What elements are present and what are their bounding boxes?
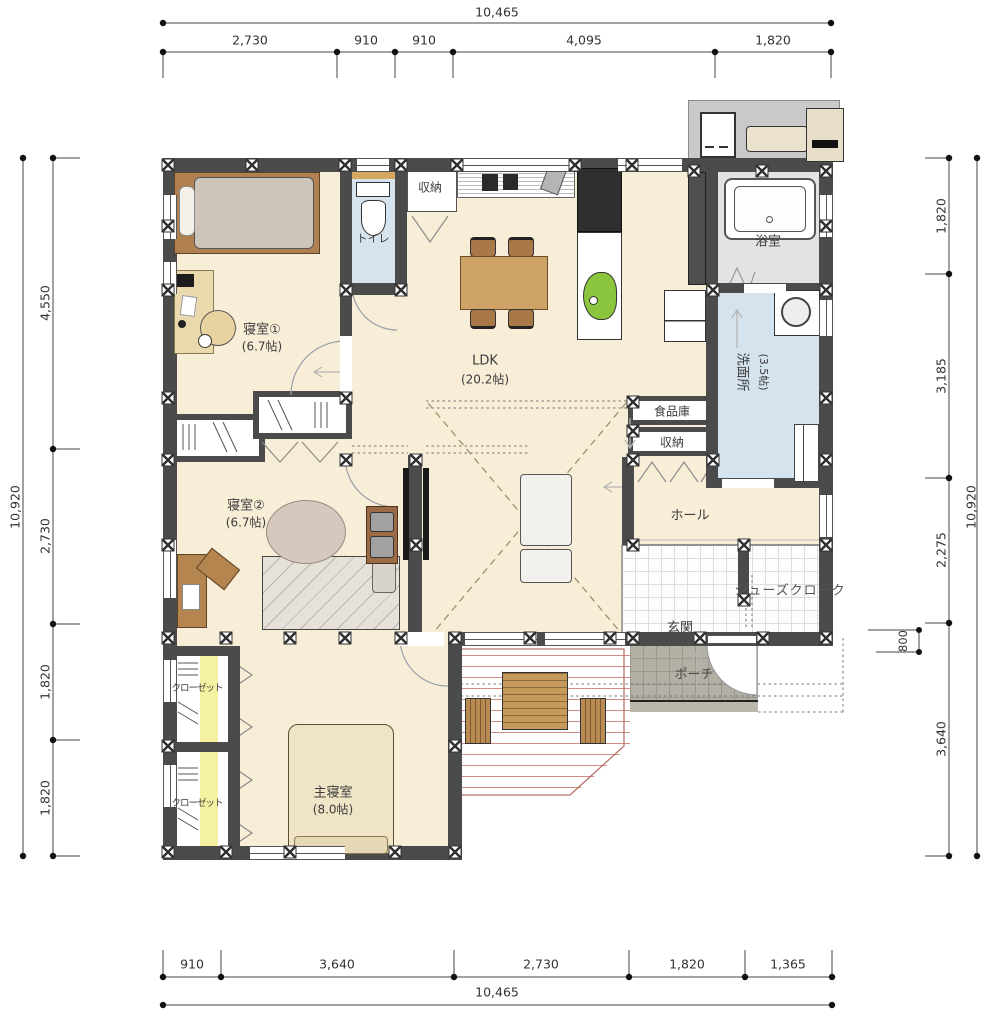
post-marker-icon bbox=[449, 740, 462, 753]
porch-step bbox=[630, 700, 758, 712]
post-marker-icon bbox=[626, 159, 639, 172]
tv-board-living bbox=[423, 468, 429, 560]
closet-upper-label: クローゼット bbox=[171, 680, 222, 694]
kitchen-sink bbox=[583, 272, 617, 320]
master-label: 主寝室 bbox=[313, 782, 352, 801]
bedroom1-area: (6.7帖) bbox=[242, 338, 282, 355]
desk2-paper bbox=[182, 584, 200, 610]
post-marker-icon bbox=[162, 454, 175, 467]
post-marker-icon bbox=[340, 284, 353, 297]
post-marker-icon bbox=[707, 454, 720, 467]
closet-mat-upper bbox=[200, 656, 218, 742]
dresser-drawer-2 bbox=[370, 536, 394, 558]
deck-chair-2 bbox=[580, 698, 606, 744]
door-opening bbox=[722, 479, 774, 488]
dim-right-seg-1: 3,185 bbox=[934, 358, 949, 394]
dim-left-seg-2: 1,820 bbox=[38, 664, 53, 700]
bath-drain bbox=[766, 216, 773, 223]
vanity bbox=[794, 424, 819, 482]
bed2-pillow bbox=[372, 561, 396, 593]
washroom-area: (3.5帖) bbox=[756, 353, 772, 390]
shoes-closet-label: シューズクローク bbox=[734, 580, 845, 599]
dining-chair-1 bbox=[470, 237, 496, 257]
closet-lower-label: クローゼット bbox=[171, 795, 222, 809]
water-heater-tank bbox=[806, 108, 844, 162]
dim-top-seg-0: 2,730 bbox=[232, 33, 268, 48]
post-marker-icon bbox=[284, 632, 297, 645]
laptop bbox=[177, 274, 194, 287]
post-marker-icon bbox=[162, 284, 175, 297]
toilet-label: トイレ bbox=[357, 230, 390, 246]
post-marker-icon bbox=[162, 846, 175, 859]
storage-top-label: 収納 bbox=[418, 179, 442, 196]
kitchen-tall-cabinet bbox=[688, 172, 706, 285]
post-marker-icon bbox=[820, 165, 833, 178]
post-marker-icon bbox=[694, 632, 707, 645]
window bbox=[250, 846, 345, 860]
wall-hall-west bbox=[622, 457, 634, 545]
post-marker-icon bbox=[707, 284, 720, 297]
ldk-area: (20.2帖) bbox=[461, 371, 509, 388]
toilet-tank bbox=[356, 182, 390, 197]
dim-left-seg-3: 1,820 bbox=[38, 780, 53, 816]
dim-right-total: 10,920 bbox=[964, 485, 979, 529]
post-marker-icon bbox=[820, 220, 833, 233]
post-marker-icon bbox=[395, 159, 408, 172]
genkan-label: 玄関 bbox=[667, 617, 693, 636]
bedroom2-label: 寝室② bbox=[227, 495, 265, 514]
master-area: (8.0帖) bbox=[313, 801, 353, 818]
post-marker-icon bbox=[395, 284, 408, 297]
bedroom1-closet-box bbox=[253, 391, 352, 439]
post-marker-icon bbox=[389, 846, 402, 859]
front-door-leaf bbox=[707, 635, 757, 644]
post-marker-icon bbox=[756, 165, 769, 178]
dining-table bbox=[460, 256, 548, 310]
wall-closet-east bbox=[228, 652, 240, 846]
kitchen-sink-drain bbox=[589, 296, 598, 305]
post-marker-icon bbox=[162, 740, 175, 753]
water-heater-pipe-unit bbox=[746, 126, 808, 152]
post-marker-icon bbox=[162, 632, 175, 645]
post-marker-icon bbox=[688, 165, 701, 178]
dim-top-seg-2: 910 bbox=[412, 33, 436, 48]
bedroom2-closet-box bbox=[163, 414, 265, 462]
sofa-upper bbox=[520, 474, 572, 546]
post-marker-icon bbox=[410, 539, 423, 552]
post-marker-icon bbox=[339, 159, 352, 172]
dim-bottom-seg-2: 2,730 bbox=[523, 957, 559, 972]
window bbox=[357, 158, 389, 172]
dining-chair-4 bbox=[508, 309, 534, 329]
washroom-label: 洗面所 bbox=[735, 352, 754, 391]
deck-chair-1 bbox=[465, 698, 491, 744]
post-marker-icon bbox=[757, 632, 770, 645]
bathtub-inner bbox=[734, 186, 806, 232]
dining-chair-2 bbox=[508, 237, 534, 257]
electric-meter-box bbox=[700, 112, 736, 158]
post-marker-icon bbox=[340, 454, 353, 467]
deck-table bbox=[502, 672, 568, 730]
door-opening bbox=[744, 284, 786, 293]
dim-top-seg-3: 4,095 bbox=[566, 33, 602, 48]
post-marker-icon bbox=[820, 539, 833, 552]
door-opening bbox=[340, 336, 352, 394]
dim-top-seg-4: 1,820 bbox=[755, 33, 791, 48]
hall-storage-label: 収納 bbox=[660, 434, 684, 451]
post-marker-icon bbox=[339, 632, 352, 645]
post-marker-icon bbox=[569, 159, 582, 172]
dim-top-seg-1: 910 bbox=[354, 33, 378, 48]
bed1-mattress bbox=[194, 177, 314, 249]
post-marker-icon bbox=[410, 454, 423, 467]
dining-chair-3 bbox=[470, 309, 496, 329]
porch-label: ポーチ bbox=[674, 664, 713, 683]
dim-bottom-seg-0: 910 bbox=[180, 957, 204, 972]
post-marker-icon bbox=[820, 392, 833, 405]
water-heater-vent bbox=[812, 140, 838, 148]
kitchen-stove-block bbox=[577, 168, 622, 232]
post-marker-icon bbox=[451, 159, 464, 172]
dim-right-seg-2: 2,275 bbox=[934, 532, 949, 568]
post-marker-icon bbox=[627, 396, 640, 409]
dim-left-seg-1: 2,730 bbox=[38, 518, 53, 554]
post-marker-icon bbox=[820, 454, 833, 467]
post-marker-icon bbox=[738, 539, 751, 552]
bed1-pillow bbox=[179, 186, 195, 236]
post-marker-icon bbox=[524, 632, 537, 645]
hall-label: ホール bbox=[670, 505, 709, 524]
post-marker-icon bbox=[820, 284, 833, 297]
wall-closet-top bbox=[163, 646, 240, 656]
washer-drum bbox=[781, 297, 811, 327]
dim-bottom-seg-3: 1,820 bbox=[669, 957, 705, 972]
counter-chair-2 bbox=[503, 174, 518, 190]
wall-bedroom1-east bbox=[340, 172, 352, 290]
refrigerator bbox=[664, 290, 706, 342]
post-marker-icon bbox=[220, 846, 233, 859]
sofa-lower bbox=[520, 549, 572, 583]
pantry-label: 食品庫 bbox=[654, 403, 690, 420]
post-marker-icon bbox=[627, 425, 640, 438]
dim-top-total: 10,465 bbox=[475, 5, 519, 20]
dim-left-seg-0: 4,550 bbox=[38, 285, 53, 321]
post-marker-icon bbox=[162, 539, 175, 552]
post-marker-icon bbox=[627, 454, 640, 467]
post-marker-icon bbox=[627, 632, 640, 645]
toilet-shelf bbox=[352, 172, 395, 179]
counter-chair-1 bbox=[482, 174, 498, 191]
dim-right-seg-3: 3,640 bbox=[934, 721, 949, 757]
window bbox=[819, 495, 833, 537]
wall-toilet-east bbox=[395, 172, 407, 290]
post-marker-icon bbox=[627, 539, 640, 552]
dim-bottom-seg-1: 3,640 bbox=[319, 957, 355, 972]
wall-south-wing-east bbox=[448, 645, 462, 860]
post-marker-icon bbox=[220, 632, 233, 645]
window bbox=[457, 158, 575, 172]
post-marker-icon bbox=[395, 632, 408, 645]
floor-plan: 寝室① (6.7帖) トイレ 収納 LDK (20.2帖) 浴室 洗面所 (3.… bbox=[0, 0, 1005, 1024]
dim-bottom-total: 10,465 bbox=[475, 985, 519, 1000]
beanbag bbox=[266, 500, 346, 564]
desk1-paper bbox=[180, 295, 198, 317]
dim-bottom-seg-4: 1,365 bbox=[770, 957, 806, 972]
post-marker-icon bbox=[449, 632, 462, 645]
ldk-label: LDK bbox=[472, 354, 498, 369]
dresser-drawer-1 bbox=[370, 512, 394, 532]
post-marker-icon bbox=[162, 220, 175, 233]
post-marker-icon bbox=[449, 846, 462, 859]
post-marker-icon bbox=[340, 392, 353, 405]
dim-right-seg-0: 1,820 bbox=[934, 198, 949, 234]
post-marker-icon bbox=[604, 632, 617, 645]
post-marker-icon bbox=[162, 392, 175, 405]
window bbox=[819, 300, 833, 336]
kettle bbox=[198, 334, 212, 348]
tv-board-bedroom2 bbox=[403, 468, 409, 560]
bedroom2-area: (6.7帖) bbox=[226, 514, 266, 531]
post-marker-icon bbox=[820, 632, 833, 645]
dim-right-sub: 800 bbox=[896, 630, 910, 652]
bath-label: 浴室 bbox=[755, 231, 781, 250]
post-marker-icon bbox=[284, 846, 297, 859]
post-marker-icon bbox=[162, 159, 175, 172]
dim-left-total: 10,920 bbox=[8, 485, 23, 529]
wall-bath-west bbox=[706, 165, 718, 485]
desk1-lamp bbox=[178, 320, 186, 328]
post-marker-icon bbox=[246, 159, 259, 172]
bedroom1-label: 寝室① bbox=[243, 319, 281, 338]
